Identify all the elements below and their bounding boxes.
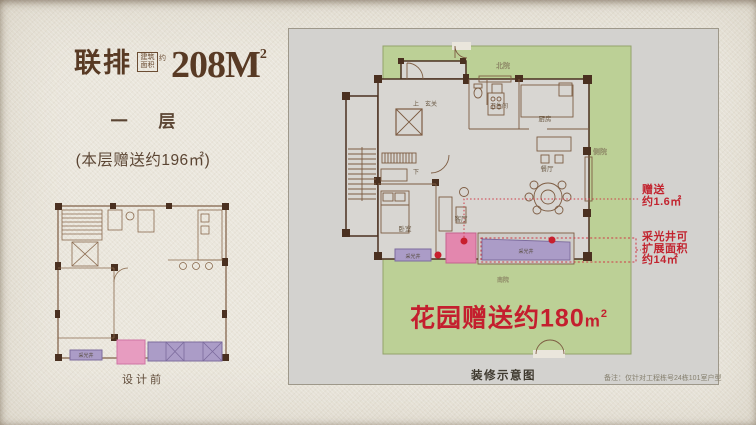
entry-label: 玄关 <box>425 100 437 108</box>
lightwell-label-before: 采光井 <box>78 352 93 359</box>
marker-dot-pink <box>461 238 468 245</box>
gift-area-after <box>446 233 476 263</box>
marker-dot-left <box>435 252 442 259</box>
bathroom-label: 卫生间 <box>490 102 508 110</box>
gift-annotation: 赠送 约1.6㎡ <box>642 185 682 208</box>
lightwell-strip-before <box>148 342 222 361</box>
bedroom-label: 卧室 <box>399 224 413 233</box>
area-superscript: 2 <box>260 48 267 62</box>
kitchen-label: 厨房 <box>539 114 552 123</box>
plan-title: 联排 建筑面积 约 208M 2 <box>74 46 267 84</box>
footnote: 备注：仅针对工程栋号24栋101室户型 <box>604 373 721 383</box>
floorplan-before-design: 采光井 <box>48 198 238 370</box>
living-label: 客厅 <box>455 214 469 223</box>
floorplan-ad-page: 联排 建筑面积 约 208M 2 一 层 (本层赠送约196㎡) <box>0 0 756 425</box>
garden-gift-headline: 花园赠送约180m2 <box>404 300 614 335</box>
before-caption: 设计前 <box>48 371 238 387</box>
south-yard-label: 南院 <box>497 276 509 284</box>
gift-area-before <box>117 340 145 364</box>
north-yard-label: 北院 <box>496 61 510 70</box>
area-approx-label: 约 <box>159 53 166 63</box>
series-label: 联排 <box>74 46 132 80</box>
south-gate-opening <box>533 350 565 358</box>
side-yard-label: 侧院 <box>593 147 607 156</box>
lightwell-annotation: 采光井可 扩展面积 约14㎡ <box>642 232 688 267</box>
decorated-plan-panel: 采光井 采光井 北院 侧院 南院 上 玄关 <box>288 28 719 385</box>
area-value: 208M <box>171 46 260 84</box>
up-label: 上 <box>413 100 419 108</box>
area-box-label: 建筑面积 <box>137 52 158 72</box>
floor-label: 一 层 <box>38 107 248 132</box>
lightwell-small-label: 采光井 <box>405 253 420 260</box>
dining-label: 餐厅 <box>541 164 555 173</box>
marker-dot-right <box>549 237 556 244</box>
area-box: 建筑面积 约 <box>137 52 166 72</box>
lightwell-label-after: 采光井 <box>518 248 533 255</box>
floor-gift-label: (本层赠送约196㎡) <box>38 148 248 170</box>
down-label: 下 <box>413 169 419 176</box>
left-text-block: 一 层 (本层赠送约196㎡) <box>38 107 248 170</box>
